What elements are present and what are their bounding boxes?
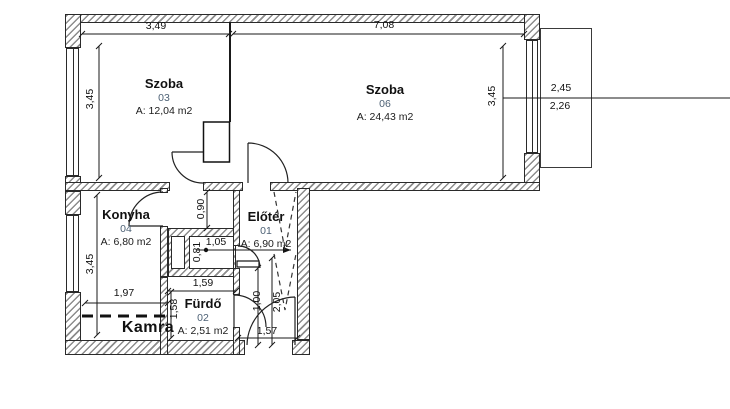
window-konyha (66, 215, 79, 292)
wall-top-right-corner (524, 14, 540, 40)
room-label-eloter: Előtér 01 A: 6,90 m2 (241, 209, 292, 252)
dim-konyha-width: 1,97 (114, 287, 134, 299)
wall-konyha-door-stub (160, 188, 168, 193)
room-area: A: 24,43 m2 (357, 111, 414, 124)
dim-hall-width-a: 1,00 (251, 291, 263, 311)
room-number: 03 (158, 92, 170, 105)
room-number: 02 (197, 312, 209, 325)
room-name: Konyha (102, 207, 150, 223)
dim-szoba03-width: 3,49 (146, 20, 166, 32)
dim-shaft-width: 1,05 (206, 236, 226, 248)
dim-szoba06-width: 7,08 (374, 19, 394, 31)
door-arc-szoba03 (172, 152, 203, 183)
wall-mid-a (65, 182, 170, 191)
room-name: Előtér (248, 209, 285, 225)
wall-lower-right (297, 188, 310, 340)
wall-top (65, 14, 540, 23)
dim-right-height: 3,45 (486, 86, 498, 106)
wall-bottom-b (292, 340, 310, 355)
door-leaf-rect (204, 122, 230, 162)
room-label-konyha: Konyha 04 A: 6,80 m2 (101, 207, 152, 250)
dim-left-height: 3,45 (84, 89, 96, 109)
wall-bottom-a (65, 340, 245, 355)
wall-hall-c (233, 327, 240, 355)
dim-konyha-height: 3,45 (84, 254, 96, 274)
window-szoba06 (526, 40, 538, 153)
room-number: 01 (260, 225, 272, 238)
room-name: Kamra (122, 318, 174, 338)
room-name: Szoba (145, 76, 183, 92)
dim-hall-width-b: 2,05 (271, 292, 283, 312)
room-label-szoba-03: Szoba 03 A: 12,04 m2 (136, 76, 193, 119)
dim-furdo-width: 1,59 (193, 277, 213, 289)
door-leaf-corridor (237, 261, 259, 267)
wall-furdo-left (160, 277, 168, 355)
room-label-kamra: Kamra (122, 318, 174, 338)
dim-furdo-height: 1,58 (168, 299, 180, 319)
room-number: 04 (120, 223, 132, 236)
room-area: A: 12,04 m2 (136, 105, 193, 118)
wall-konyha-right (160, 226, 168, 277)
dim-balcony-outer: 2,45 (551, 82, 571, 94)
room-label-furdo: Fürdő 02 A: 2,51 m2 (178, 296, 229, 339)
wall-hall-b (233, 268, 240, 295)
wall-hall-a (233, 190, 240, 246)
duct-cell-small (171, 236, 185, 269)
wall-mid-c (270, 182, 540, 191)
room-area: A: 2,51 m2 (178, 325, 229, 338)
door-arc-szoba06 (248, 143, 288, 183)
dim-entrance-width: 1,57 (257, 325, 277, 337)
wall-top-left-corner (65, 14, 81, 48)
floor-plan: Szoba 03 A: 12,04 m2 Szoba 06 A: 24,43 m… (0, 0, 730, 409)
room-area: A: 6,80 m2 (101, 236, 152, 249)
dim-corridor-depth: 0,90 (195, 199, 207, 219)
room-name: Fürdő (185, 296, 222, 312)
room-name: Szoba (366, 82, 404, 98)
window-szoba03 (66, 48, 79, 176)
wall-lower-left-top (65, 191, 81, 215)
dim-shaft-depth: 0,81 (191, 242, 203, 262)
room-number: 06 (379, 98, 391, 111)
balcony-outline (540, 28, 592, 168)
room-area: A: 6,90 m2 (241, 238, 292, 251)
dim-balcony-inner: 2,26 (550, 100, 570, 112)
room-label-szoba-06: Szoba 06 A: 24,43 m2 (357, 82, 414, 125)
